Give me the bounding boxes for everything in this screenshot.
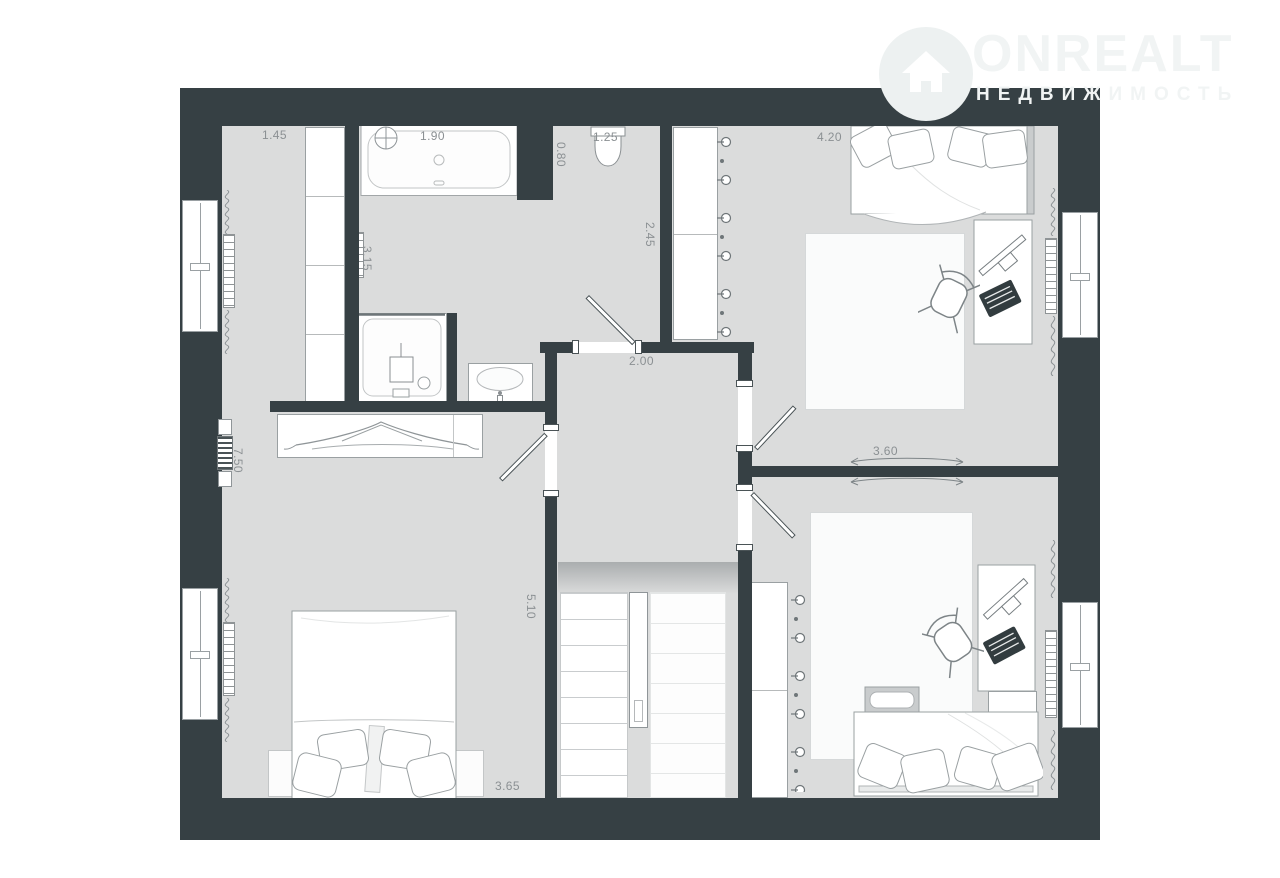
washbasin-icon: [468, 363, 533, 403]
radiator-right-bottom: [1045, 630, 1057, 718]
radiator-left-top: [223, 234, 235, 308]
wall-outer-bottom: [180, 798, 1100, 840]
hanger-rail-top-right: [710, 132, 736, 338]
stairwell-shadow: [558, 562, 738, 594]
dim-label-315: 3.15: [360, 246, 374, 271]
hanger-rail-bottom-right: [784, 592, 810, 792]
dim-label-200: 2.00: [629, 354, 654, 368]
door-jamb: [572, 340, 579, 354]
door-opening-bedroom-top-right: [738, 386, 752, 447]
wall-wc-east: [660, 126, 672, 353]
double-bed-left: [291, 610, 457, 800]
radiator-right-top: [1045, 238, 1057, 314]
door-jamb: [736, 380, 753, 387]
curtain-icon: [220, 578, 234, 622]
dim-label-750: 7.50: [231, 448, 245, 473]
vent-cap-top: [218, 419, 232, 435]
radiator-left-bottom: [223, 622, 235, 696]
stairs-flight-right: [650, 592, 726, 798]
window-left-top: [182, 200, 218, 332]
console-table: [277, 414, 483, 458]
door-jamb: [635, 340, 642, 354]
stairs-railing: [629, 592, 648, 728]
wall-hall-west: [545, 353, 557, 798]
door-jamb: [736, 544, 753, 551]
door-opening-bathroom: [578, 342, 636, 353]
floor-plan-page: 1.45 1.90 1.25 0.80 2.45 4.20 3.15 2.00 …: [0, 0, 1280, 878]
console-divider: [453, 415, 454, 457]
dim-label-190: 1.90: [420, 129, 445, 143]
curtain-icon: [220, 190, 234, 234]
door-jamb: [736, 445, 753, 452]
wall-bathroom-south: [270, 401, 557, 412]
door-opening-bedroom-left: [545, 430, 557, 492]
curtain-icon: [1046, 730, 1060, 790]
office-chair-top-right: [918, 256, 980, 340]
desk-top-right: [973, 218, 1035, 346]
door-opening-bedroom-bottom-right: [738, 489, 752, 546]
curtain-icon: [220, 698, 234, 742]
house-in-circle-icon: [878, 26, 974, 122]
dim-label-360: 3.60: [873, 444, 898, 458]
dim-label-125: 1.25: [593, 130, 618, 144]
curtain-icon: [220, 310, 234, 354]
single-bed-top-right: [850, 124, 1040, 228]
dimension-arrows-360: [848, 455, 966, 487]
curtain-icon: [1046, 188, 1060, 236]
wardrobe-dressing-corridor: [305, 127, 345, 403]
wall-shower-east: [447, 313, 457, 402]
dim-label-420: 4.20: [817, 130, 842, 144]
dim-label-080: 0.80: [554, 142, 568, 167]
single-bed-bottom-right: [853, 686, 1043, 798]
dim-label-365: 3.65: [495, 779, 520, 793]
vent-cap-bottom: [218, 471, 232, 487]
curtain-icon: [1046, 316, 1060, 376]
office-chair-bottom-right: [922, 600, 984, 684]
shower-icon: [357, 313, 447, 402]
logo-brand-text: ONREALT: [972, 28, 1233, 80]
wall-bathroom-west: [345, 126, 359, 412]
window-left-bottom: [182, 588, 218, 720]
wall-tub-wc: [517, 126, 553, 200]
stairs-flight-left: [560, 592, 628, 798]
door-jamb: [736, 484, 753, 491]
dim-label-245: 2.45: [643, 222, 657, 247]
dim-label-145: 1.45: [262, 128, 287, 142]
dim-label-510: 5.10: [524, 594, 538, 619]
curtain-icon: [1046, 540, 1060, 598]
door-jamb: [543, 490, 559, 497]
desk-bottom-right: [977, 563, 1037, 693]
console-decor-icon: [278, 415, 482, 457]
stairs-railing-slot: [634, 700, 643, 722]
window-right-top: [1062, 212, 1098, 338]
logo-tagline-text: НЕДВИЖИМОСТЬ: [976, 85, 1239, 104]
window-right-bottom: [1062, 602, 1098, 728]
door-jamb: [543, 424, 559, 431]
